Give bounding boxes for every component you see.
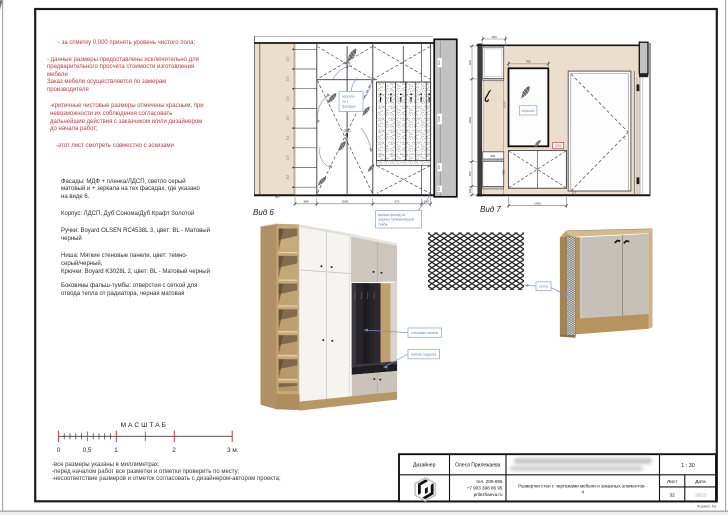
svg-text:1: 1 [114, 447, 118, 454]
svg-text:450: 450 [437, 164, 441, 169]
svg-text:Формат А3: Формат А3 [697, 504, 716, 508]
svg-text:0,5: 0,5 [83, 447, 92, 454]
svg-text:Дата: Дата [695, 479, 706, 485]
svg-text:600: 600 [468, 60, 472, 65]
svg-text:400: 400 [502, 170, 506, 175]
svg-text:1000: 1000 [534, 201, 541, 205]
svg-text:4: 4 [582, 490, 585, 495]
svg-text:зеркало: зеркало [522, 109, 535, 113]
svg-text:1000: 1000 [341, 200, 348, 204]
svg-text:зеркало: зеркало [342, 95, 355, 99]
svg-text:3 м.: 3 м. [227, 447, 239, 454]
svg-text:2023: 2023 [695, 493, 706, 499]
svg-text:МАСШТАБ: МАСШТАБ [121, 422, 168, 429]
svg-text:1500: 1500 [437, 115, 441, 122]
svg-text:тумбы: тумбы [378, 222, 388, 226]
svg-text:386: 386 [303, 200, 308, 204]
svg-text:мягкая сидушка: мягкая сидушка [411, 353, 436, 357]
svg-text:+7 903 398 86 95: +7 903 398 86 95 [467, 486, 503, 491]
svg-text:450: 450 [468, 171, 472, 176]
svg-text:32: 32 [670, 493, 676, 499]
svg-text:ширину примыкающей: ширину примыкающей [378, 218, 414, 222]
svg-text:Олеся Прилежаева: Олеся Прилежаева [455, 463, 500, 469]
svg-text:Развертки стен с чертежами меб: Развертки стен с чертежами мебели и зака… [518, 484, 648, 489]
svg-text:150: 150 [468, 188, 472, 193]
svg-text:525: 525 [555, 144, 561, 148]
svg-text:Вид 6: Вид 6 [253, 208, 274, 217]
svg-text:112: 112 [286, 175, 290, 180]
svg-text:фальш-фасад на: фальш-фасад на [378, 213, 405, 217]
svg-text:1500: 1500 [468, 116, 472, 123]
svg-text:стеновые панели: стеновые панели [411, 331, 438, 335]
svg-text:фасадке: фасадке [342, 105, 356, 109]
svg-text:112: 112 [286, 56, 290, 61]
svg-text:0: 0 [57, 447, 61, 454]
svg-text:112: 112 [286, 96, 290, 101]
svg-text:prilezhaeva.ru: prilezhaeva.ru [474, 492, 503, 497]
svg-text:112: 112 [286, 76, 290, 81]
svg-text:сетка: сетка [539, 285, 548, 289]
svg-text:700: 700 [526, 60, 531, 64]
svg-text:60: 60 [623, 136, 627, 140]
svg-text:1 : 30: 1 : 30 [681, 463, 695, 469]
svg-text:Дизайнер: Дизайнер [413, 462, 436, 469]
svg-text:112: 112 [286, 116, 290, 121]
svg-text:150: 150 [437, 186, 441, 191]
svg-text:112: 112 [286, 155, 290, 160]
svg-text:тел. 200-695: тел. 200-695 [476, 479, 503, 484]
svg-text:871: 871 [395, 200, 400, 204]
svg-text:400: 400 [490, 154, 495, 158]
svg-text:1530: 1530 [502, 101, 506, 108]
svg-text:на 1: на 1 [342, 100, 349, 104]
svg-text:600: 600 [437, 60, 441, 65]
svg-text:112: 112 [286, 135, 290, 140]
svg-text:400: 400 [492, 35, 497, 39]
svg-text:Вид 7: Вид 7 [480, 205, 501, 214]
svg-text:Лист: Лист [667, 479, 678, 485]
svg-text:2: 2 [172, 447, 176, 454]
